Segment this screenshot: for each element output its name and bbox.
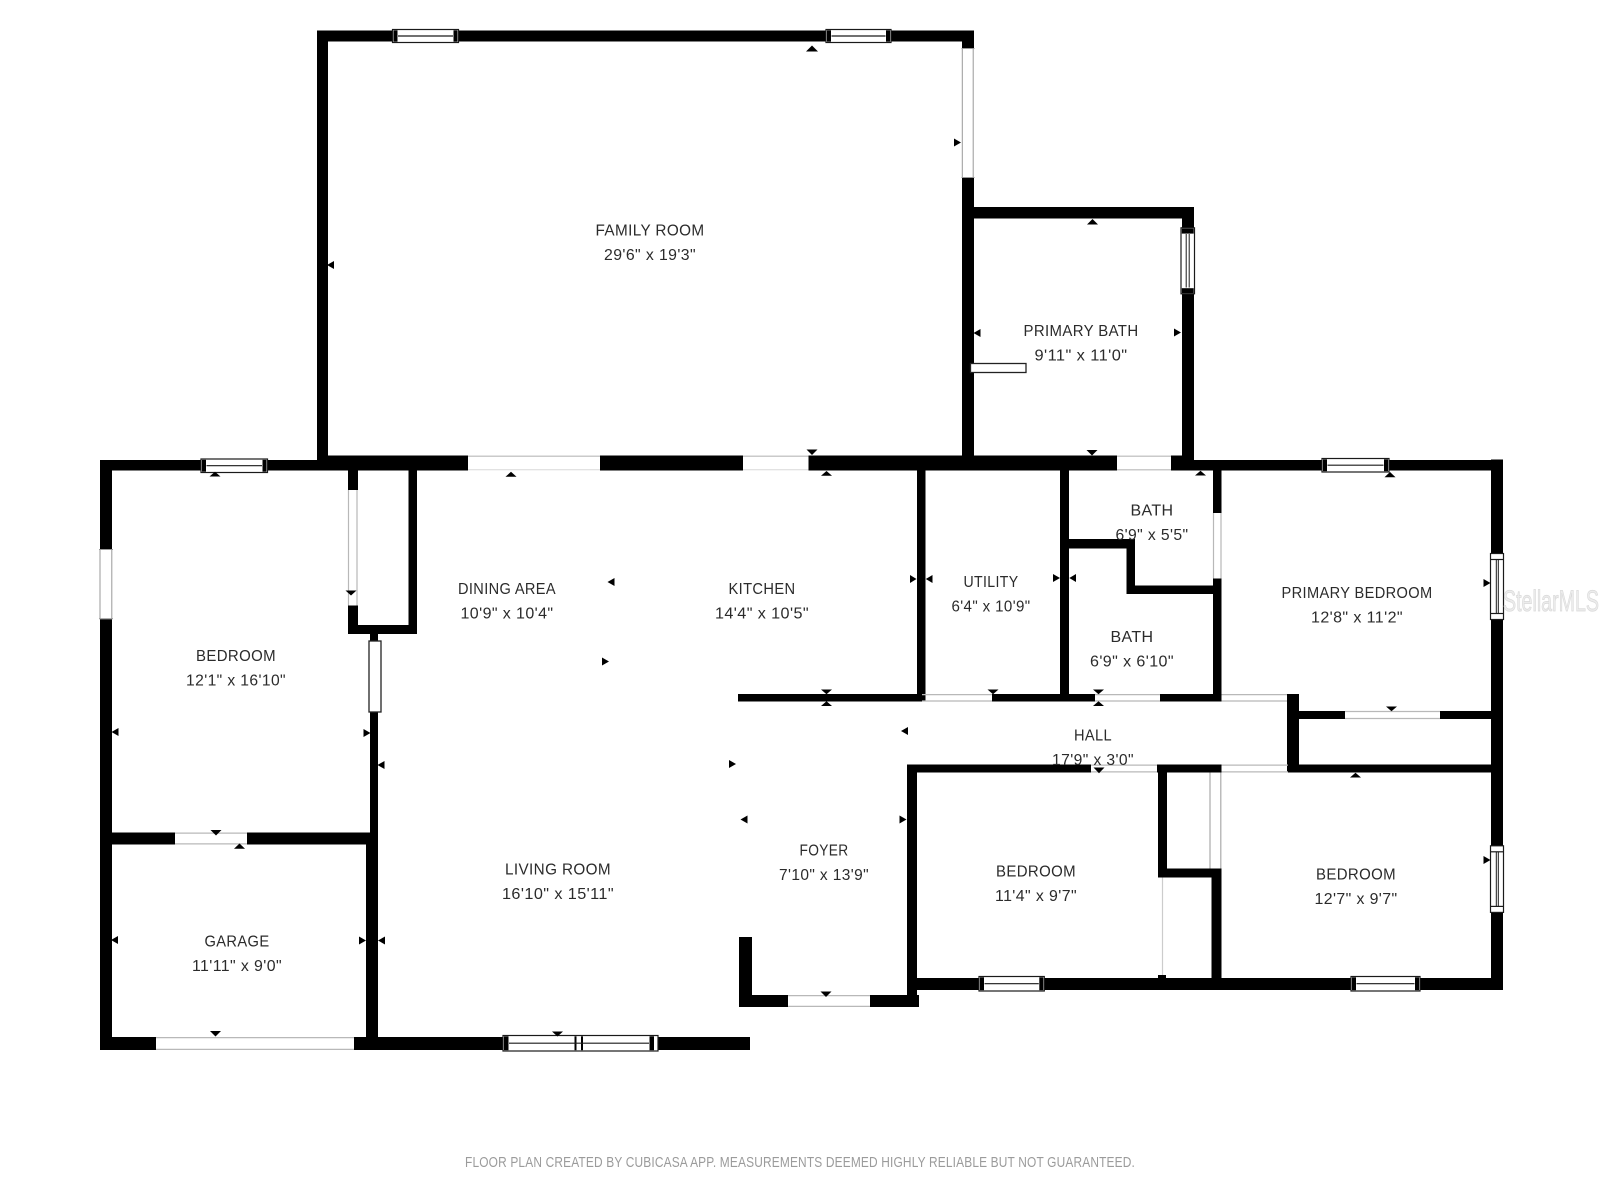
svg-text:GARAGE: GARAGE [205,934,270,951]
svg-text:DINING AREA: DINING AREA [458,581,556,598]
svg-text:BEDROOM: BEDROOM [1316,867,1396,884]
svg-text:17'9" x 3'0": 17'9" x 3'0" [1052,752,1134,769]
svg-text:FAMILY ROOM: FAMILY ROOM [596,223,705,240]
svg-text:StellarMLS: StellarMLS [1503,585,1599,618]
svg-text:UTILITY: UTILITY [964,574,1019,591]
svg-text:12'1" x 16'10": 12'1" x 16'10" [186,673,286,690]
svg-text:BATH: BATH [1111,629,1154,646]
svg-text:12'8" x 11'2": 12'8" x 11'2" [1311,610,1403,627]
svg-text:29'6" x 19'3": 29'6" x 19'3" [604,247,696,264]
svg-text:11'11" x 9'0": 11'11" x 9'0" [192,958,282,975]
svg-text:9'11" x 11'0": 9'11" x 11'0" [1035,348,1128,365]
svg-text:16'10" x 15'11": 16'10" x 15'11" [502,886,614,903]
svg-text:12'7" x 9'7": 12'7" x 9'7" [1315,891,1398,908]
svg-text:7'10" x 13'9": 7'10" x 13'9" [779,867,869,884]
svg-text:FLOOR PLAN CREATED BY CUBICASA: FLOOR PLAN CREATED BY CUBICASA APP. MEAS… [465,1155,1135,1171]
svg-text:6'4" x 10'9": 6'4" x 10'9" [952,599,1031,616]
svg-text:BATH: BATH [1131,503,1174,520]
svg-text:6'9" x 5'5": 6'9" x 5'5" [1116,527,1189,544]
svg-text:KITCHEN: KITCHEN [729,581,796,598]
svg-text:6'9" x 6'10": 6'9" x 6'10" [1090,654,1174,671]
svg-text:10'9" x 10'4": 10'9" x 10'4" [461,606,554,623]
svg-text:BEDROOM: BEDROOM [196,648,276,665]
svg-text:PRIMARY BEDROOM: PRIMARY BEDROOM [1282,585,1433,602]
svg-text:11'4" x 9'7": 11'4" x 9'7" [995,888,1077,905]
svg-text:HALL: HALL [1074,728,1112,745]
svg-text:FOYER: FOYER [800,843,849,860]
svg-text:LIVING ROOM: LIVING ROOM [505,862,611,879]
svg-text:PRIMARY BATH: PRIMARY BATH [1024,323,1139,340]
svg-text:14'4" x 10'5": 14'4" x 10'5" [715,606,809,623]
svg-text:BEDROOM: BEDROOM [996,864,1076,881]
